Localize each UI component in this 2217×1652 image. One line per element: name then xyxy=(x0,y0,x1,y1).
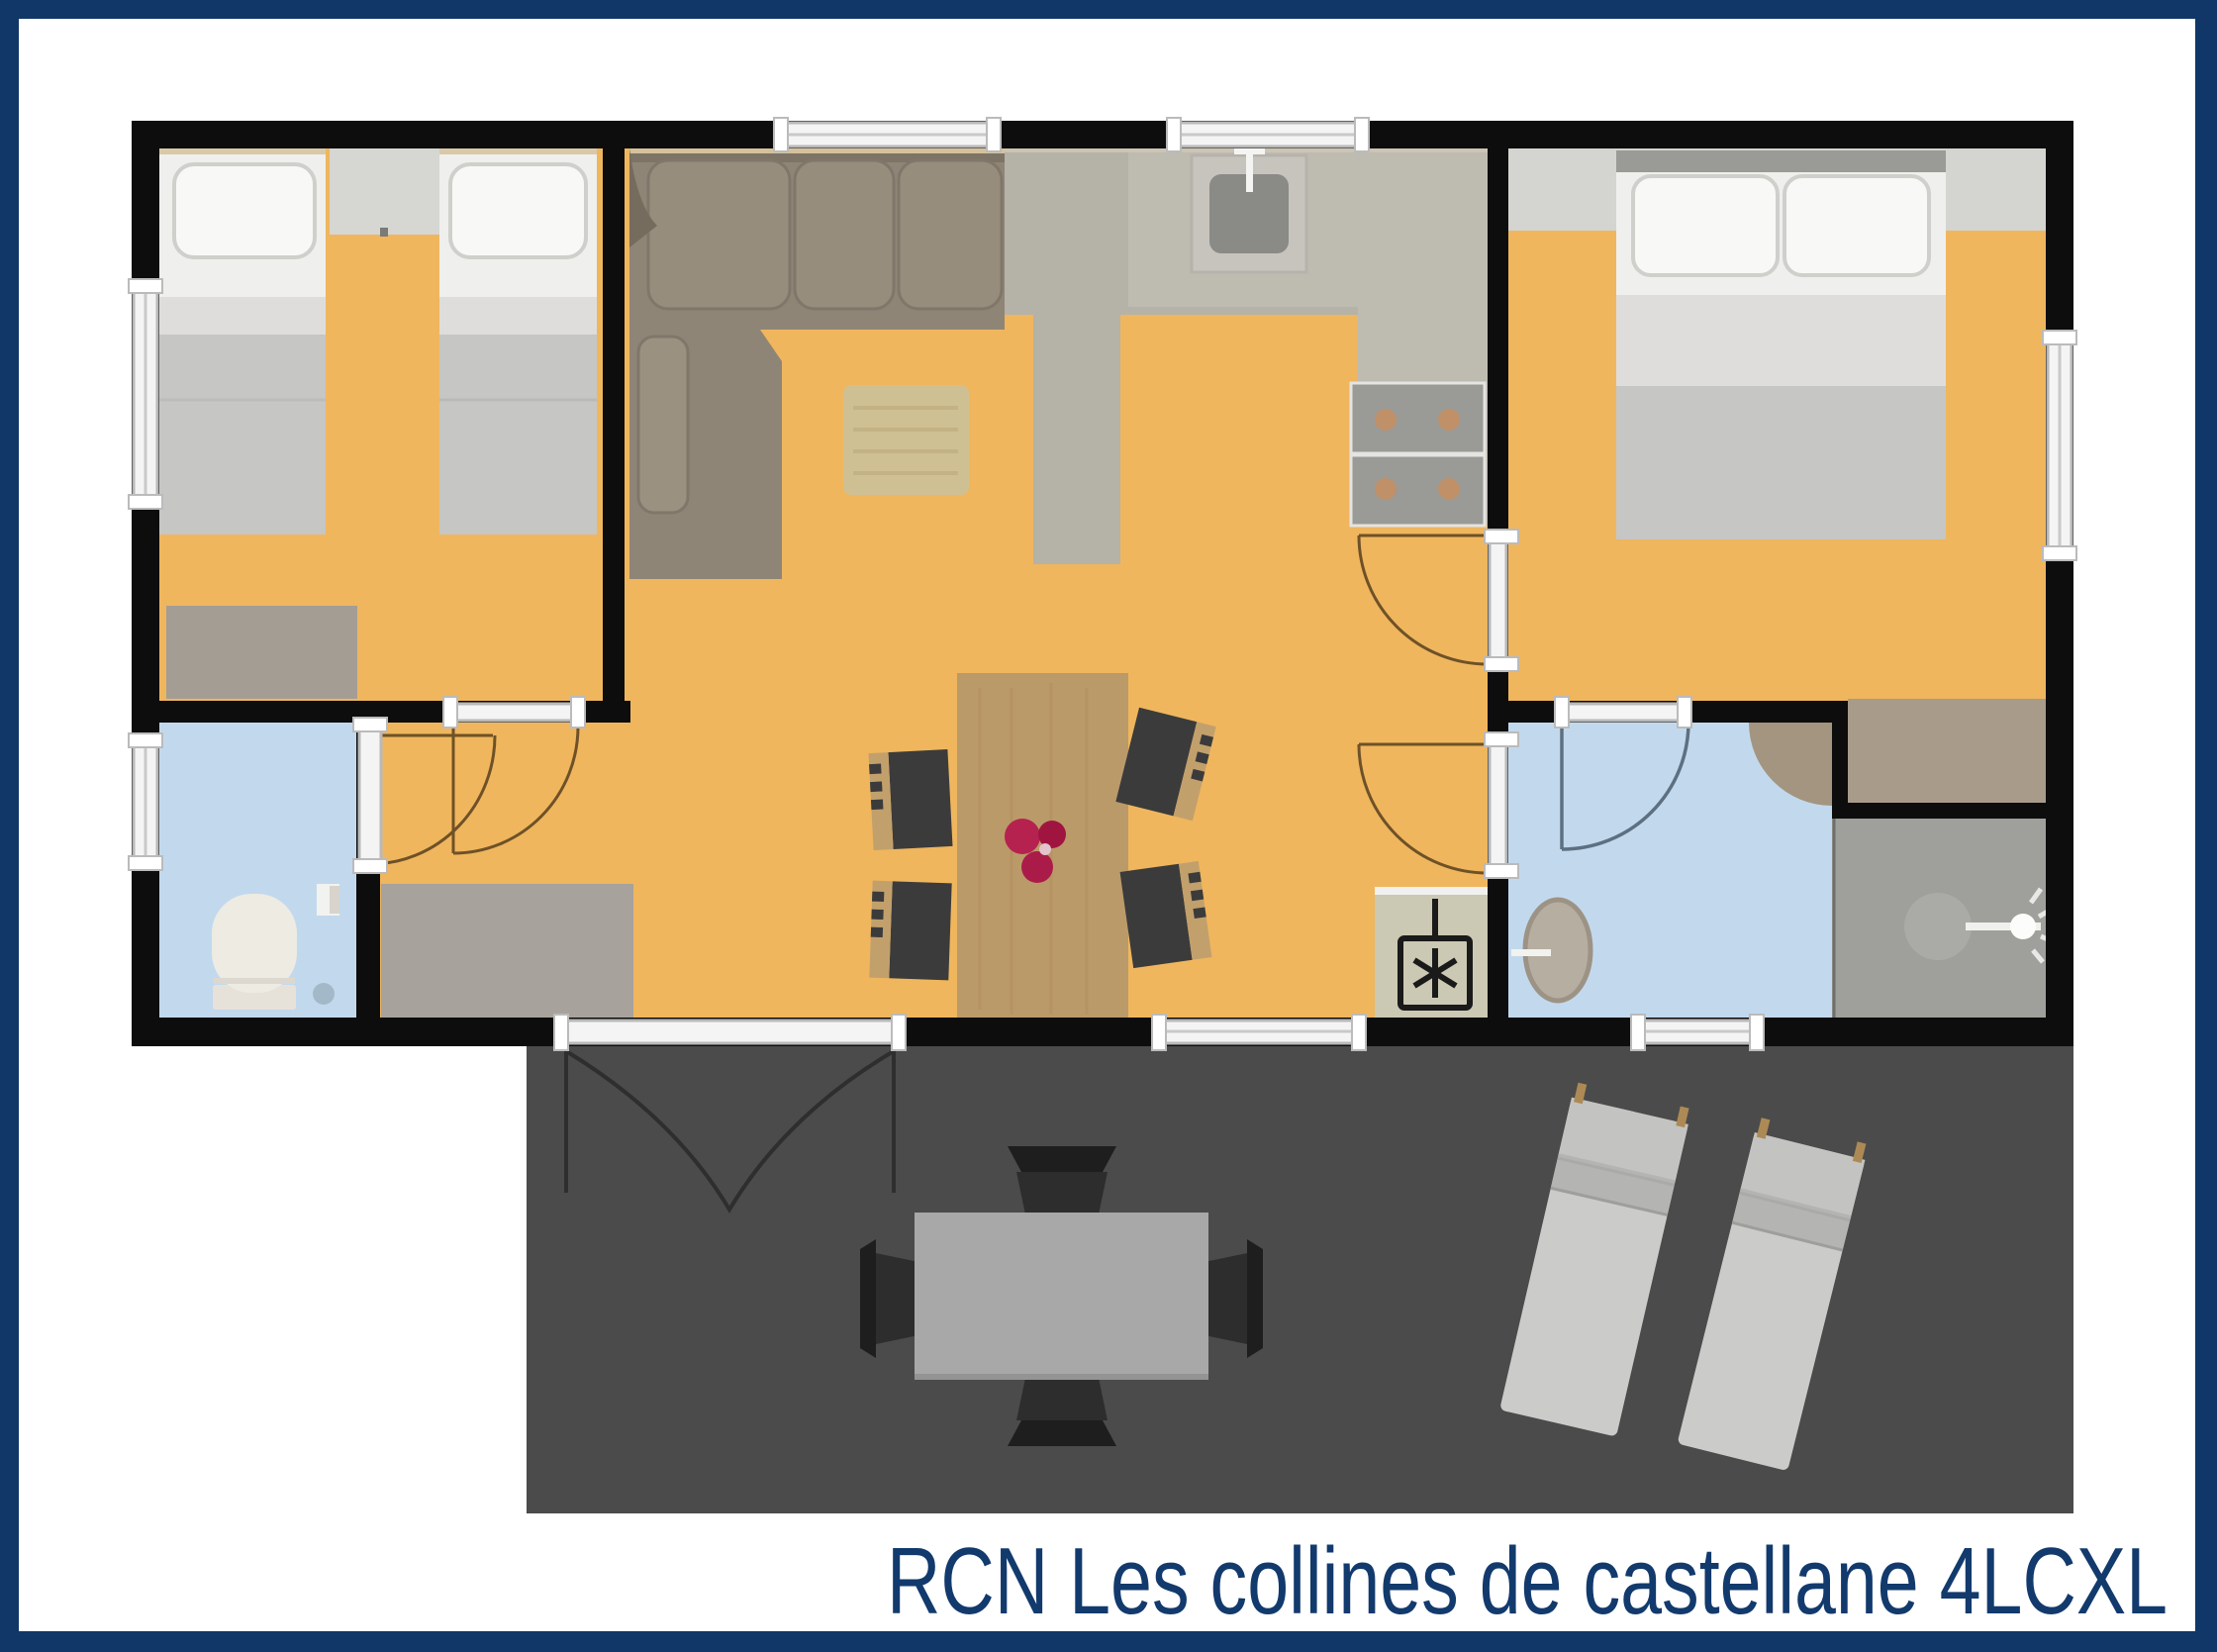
svg-text:RCN Les collines de castellane: RCN Les collines de castellane 4LCXL xyxy=(887,1528,2168,1634)
